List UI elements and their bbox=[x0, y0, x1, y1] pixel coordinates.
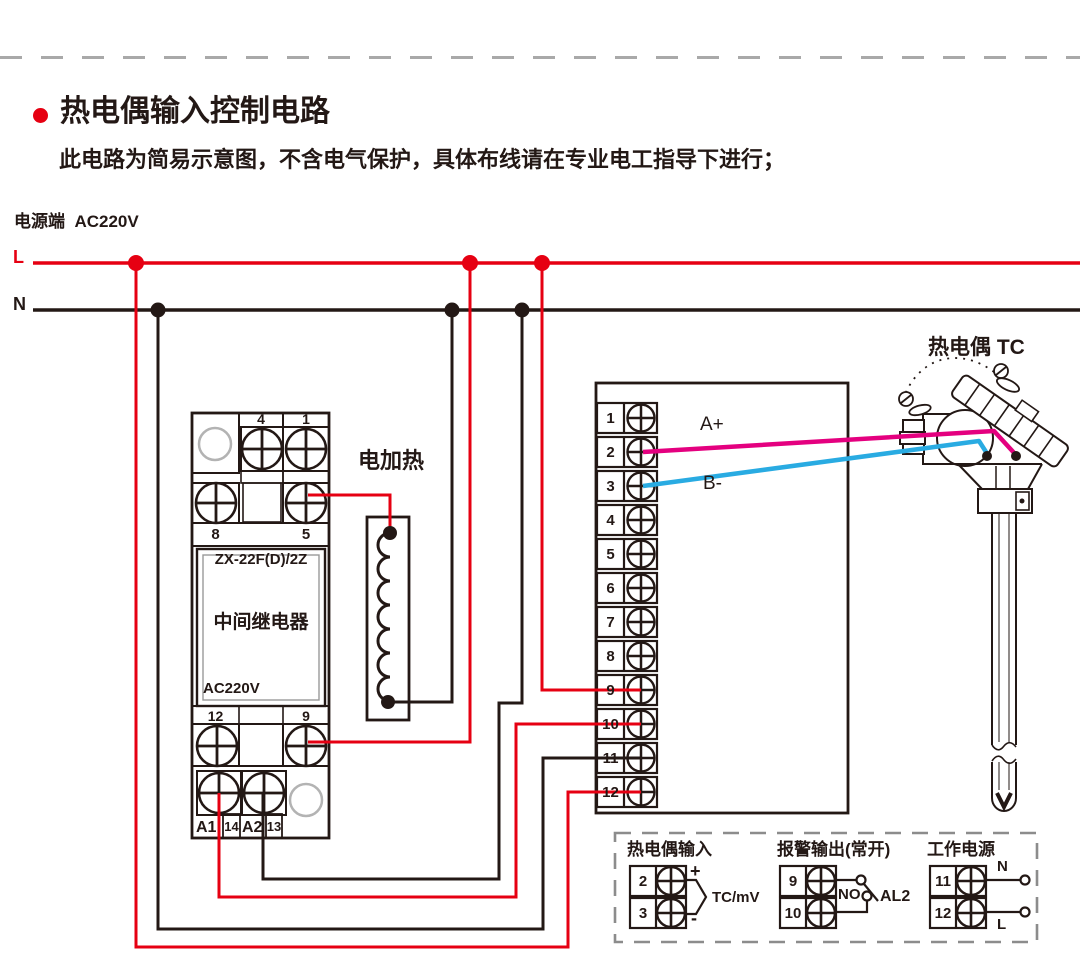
legend-terminal-3: 3 bbox=[630, 905, 656, 922]
probe bbox=[992, 513, 1016, 811]
power-wires bbox=[985, 876, 1030, 917]
legend-alarm-title: 报警输出(常开) bbox=[777, 840, 890, 860]
controller-terminal-3: 3 bbox=[597, 478, 624, 495]
controller-terminal-2: 2 bbox=[597, 444, 624, 461]
relay-terminal-5-label: 5 bbox=[283, 526, 329, 543]
relay-name-label: 中间继电器 bbox=[197, 612, 325, 634]
legend-terminal-10: 10 bbox=[780, 905, 806, 922]
controller-terminal-10: 10 bbox=[597, 716, 624, 733]
legend-tc-mv-label: TC/mV bbox=[712, 889, 760, 906]
thermocouple-sensor bbox=[899, 358, 1076, 811]
thermocouple-label: 热电偶 TC bbox=[928, 336, 1025, 360]
relay-terminal-8-label: 8 bbox=[192, 526, 239, 543]
heater-label: 电加热 bbox=[358, 448, 424, 473]
heater-component bbox=[367, 517, 409, 720]
controller-terminal-1: 1 bbox=[597, 410, 624, 427]
relay-a2-label: A2 bbox=[242, 819, 262, 837]
legend-minus-label: - bbox=[691, 908, 697, 929]
controller-terminal-4: 4 bbox=[597, 512, 624, 529]
probe-tip-mark bbox=[997, 793, 1011, 807]
legend-power-title: 工作电源 bbox=[927, 840, 995, 860]
wire-a-plus-label: A+ bbox=[700, 414, 724, 436]
relay-a1-label: A1 bbox=[196, 819, 216, 837]
relay-terminal-4-label: 4 bbox=[239, 411, 283, 427]
relay-terminal-1-label: 1 bbox=[283, 411, 329, 427]
relay-14-label: 14 bbox=[223, 820, 240, 835]
relay-13-label: 13 bbox=[266, 820, 282, 835]
legend-plus-label: + bbox=[690, 861, 701, 882]
wiring-diagram-page: 热电偶输入控制电路 此电路为简易示意图，不含电气保护，具体布线请在专业电工指导下… bbox=[0, 0, 1080, 975]
controller-terminal-5: 5 bbox=[597, 546, 624, 563]
legend-terminal-12: 12 bbox=[930, 905, 956, 922]
tc-terminal-dot-b bbox=[982, 451, 992, 461]
relay-terminal-9-label: 9 bbox=[283, 708, 329, 724]
wire-b-minus-label: B- bbox=[703, 473, 722, 495]
controller-terminal-9: 9 bbox=[597, 682, 624, 699]
relay-terminal-12-label: 12 bbox=[192, 708, 239, 724]
controller-terminal-12: 12 bbox=[597, 784, 624, 801]
legend-n-label: N bbox=[997, 858, 1008, 875]
controller-terminal-8: 8 bbox=[597, 648, 624, 665]
legend-al2-label: AL2 bbox=[880, 888, 910, 906]
legend-terminal-11: 11 bbox=[930, 873, 956, 890]
controller-terminal-6: 6 bbox=[597, 580, 624, 597]
legend-terminal-9: 9 bbox=[780, 873, 806, 890]
circuit-diagram-svg bbox=[0, 0, 1080, 975]
controller-terminal-11: 11 bbox=[597, 750, 624, 767]
legend-tc-input-title: 热电偶输入 bbox=[627, 840, 712, 860]
legend-terminal-2: 2 bbox=[630, 873, 656, 890]
relay-model-label: ZX-22F(D)/2Z bbox=[200, 551, 322, 568]
tc-terminal-dot-a bbox=[1011, 451, 1021, 461]
relay-voltage-label: AC220V bbox=[203, 680, 260, 697]
legend-no-label: NO bbox=[838, 886, 861, 903]
controller-terminal-7: 7 bbox=[597, 614, 624, 631]
legend-l-label: L bbox=[997, 916, 1006, 933]
